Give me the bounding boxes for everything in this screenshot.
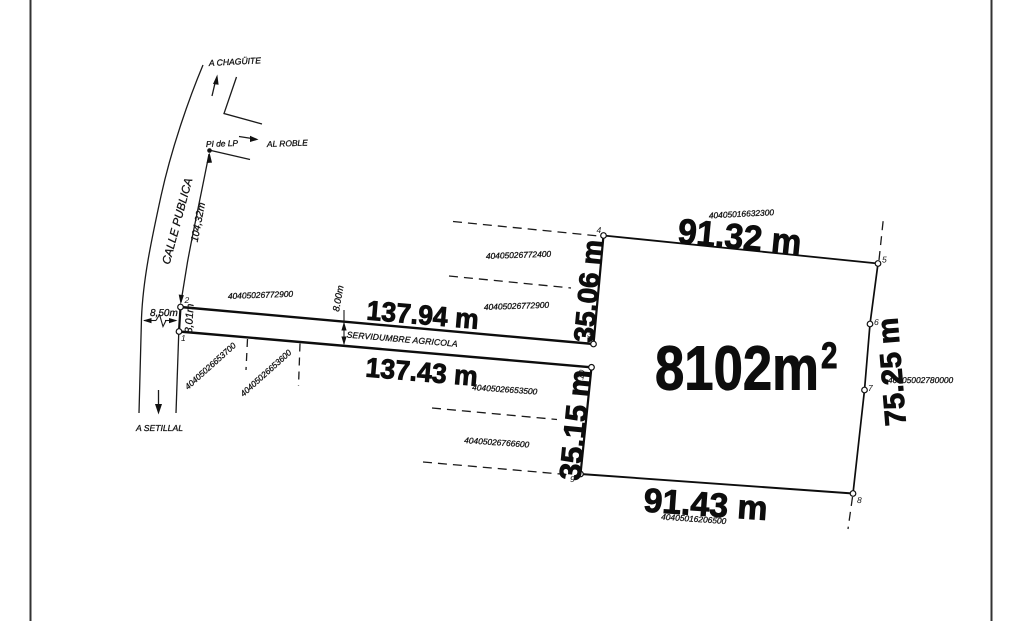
svg-text:7: 7 xyxy=(868,383,873,393)
svg-text:4: 4 xyxy=(597,225,602,235)
svg-text:AL ROBLE: AL ROBLE xyxy=(266,138,309,149)
svg-text:40405026772400: 40405026772400 xyxy=(486,249,552,261)
svg-text:40405002780000: 40405002780000 xyxy=(888,375,954,385)
svg-text:8: 8 xyxy=(857,495,862,505)
svg-text:40405026653700: 40405026653700 xyxy=(183,340,238,391)
svg-text:137.94 m: 137.94 m xyxy=(365,295,479,335)
svg-text:75.25 m: 75.25 m xyxy=(871,317,913,428)
svg-text:35.15 m: 35.15 m xyxy=(554,368,598,482)
svg-text:8.00m: 8.00m xyxy=(331,285,346,313)
svg-text:SERVIDUMBRE AGRICOLA: SERVIDUMBRE AGRICOLA xyxy=(346,330,458,349)
svg-text:40405026653500: 40405026653500 xyxy=(472,382,538,397)
svg-text:5: 5 xyxy=(882,255,887,265)
svg-text:40405026772900: 40405026772900 xyxy=(484,300,550,312)
svg-text:A CHAGÜITE: A CHAGÜITE xyxy=(208,55,262,68)
svg-text:8102m: 8102m xyxy=(655,334,819,404)
svg-text:40405026772900: 40405026772900 xyxy=(228,289,294,301)
svg-text:CALLE PUBLICA: CALLE PUBLICA xyxy=(161,177,196,266)
svg-text:91.32 m: 91.32 m xyxy=(676,211,803,263)
svg-text:8,50m: 8,50m xyxy=(150,308,178,319)
svg-text:137.43 m: 137.43 m xyxy=(364,352,478,392)
svg-text:40405026766600: 40405026766600 xyxy=(464,435,530,450)
svg-text:35.06 m: 35.06 m xyxy=(568,238,608,343)
svg-text:8,01m: 8,01m xyxy=(183,303,197,333)
svg-text:104,32m: 104,32m xyxy=(190,201,209,243)
svg-text:2: 2 xyxy=(821,335,837,376)
svg-text:A SETILLAL: A SETILLAL xyxy=(135,423,183,433)
svg-text:1: 1 xyxy=(181,333,186,343)
svg-text:PI de LP: PI de LP xyxy=(206,138,239,149)
